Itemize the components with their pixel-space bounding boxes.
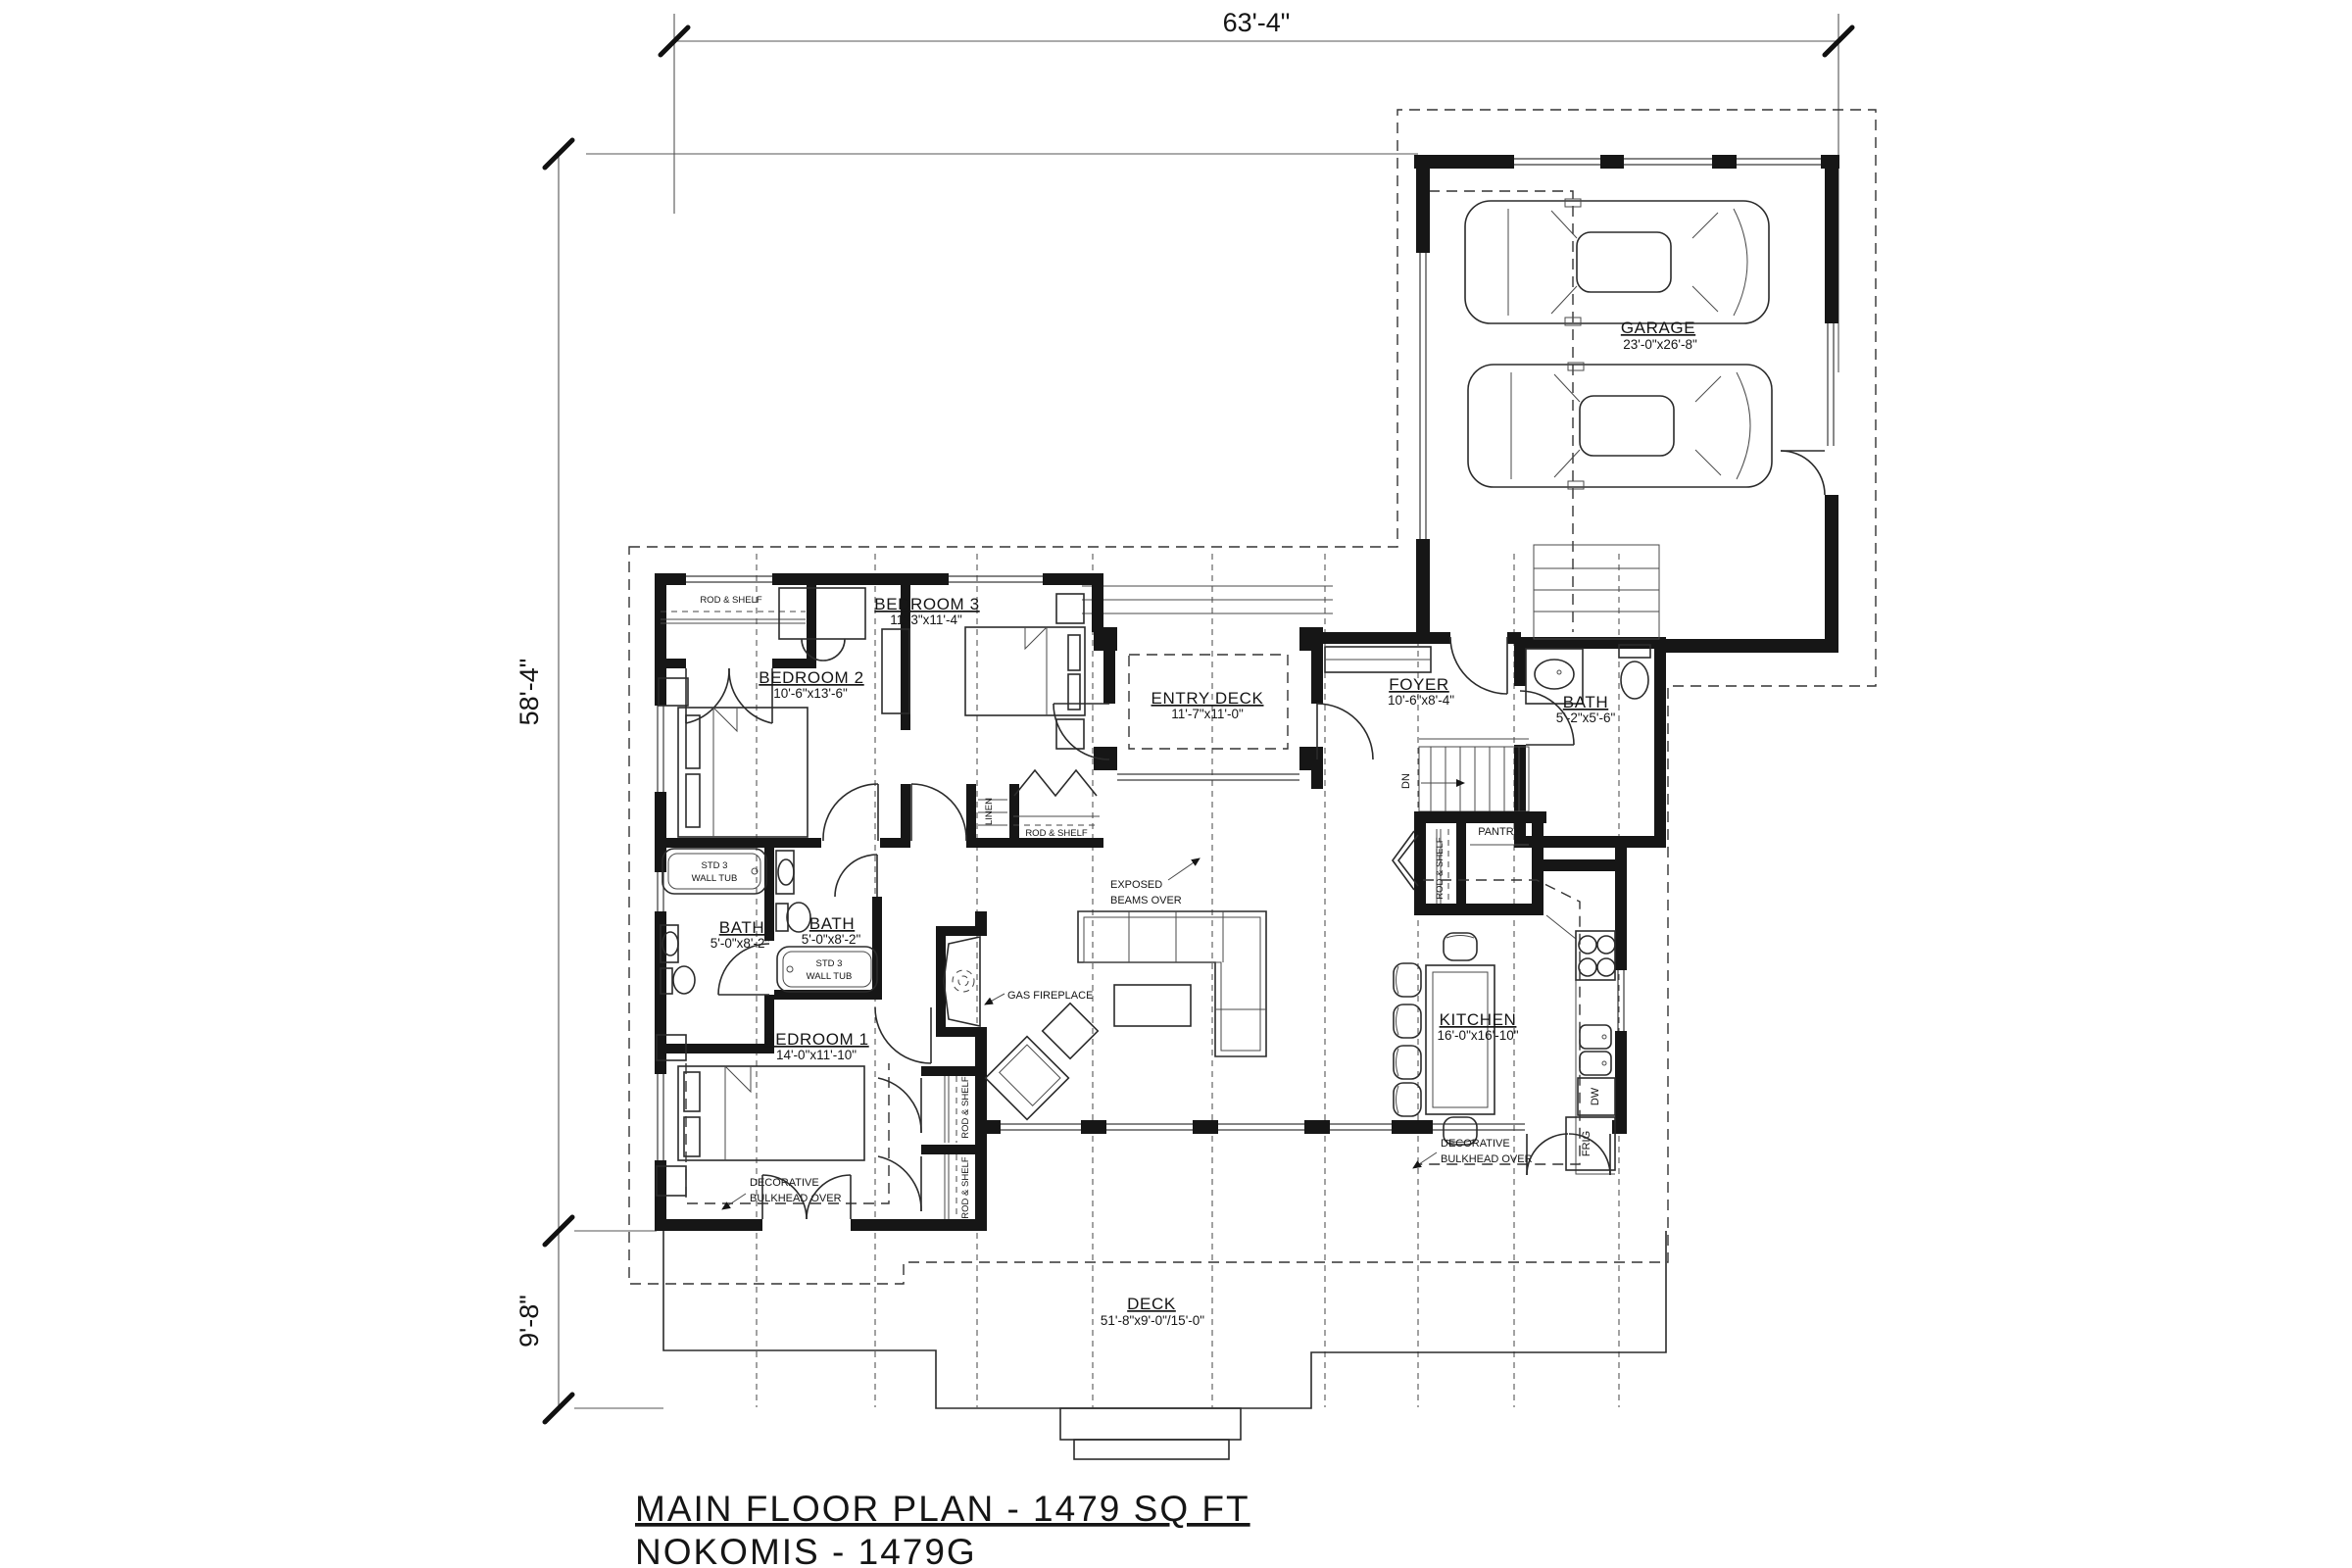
main-bath-size: 5'-0"x8'-2" <box>802 932 861 947</box>
bulkhead-note-right-line1: DECORATIVE <box>1441 1138 1510 1150</box>
deck-size: 51'-8"x9'-0"/15'-0" <box>1101 1313 1204 1328</box>
sectional-sofa <box>1078 911 1266 1056</box>
exposed-beams-note-line1: EXPOSED <box>1110 879 1162 891</box>
hall-bath-size: 5'-2"x5'-6" <box>1556 710 1616 725</box>
coffee-table <box>1114 985 1191 1026</box>
bedroom2-closet-rod-shelf-label: ROD & SHELF <box>700 595 762 606</box>
bedroom1-closet-rod-shelf-bottom: ROD & SHELF <box>960 1156 971 1219</box>
pantry-label: PANTRY <box>1478 826 1521 838</box>
entry-deck-size: 11'-7"x11'-0" <box>1171 707 1244 721</box>
ensuite-bath-size: 5'-0"x8'-2" <box>710 936 770 951</box>
main-bath-tub-line2: WALL TUB <box>807 971 853 982</box>
bedroom3-bed <box>965 627 1085 715</box>
title-block: MAIN FLOOR PLAN - 1479 SQ FT NOKOMIS - 1… <box>635 1489 1250 1568</box>
deck-steps-lower <box>1074 1440 1229 1459</box>
structural-grid-lines <box>757 554 1619 1407</box>
garage-label: GARAGE <box>1621 318 1695 337</box>
fridge-label: FRIG <box>1581 1131 1592 1156</box>
kitchen-size: 16'-0"x16'-10" <box>1437 1028 1518 1043</box>
deck: DECK 51'-8"x9'-0"/15'-0" <box>663 1231 1666 1459</box>
bedroom1-label: BEDROOM 1 <box>763 1030 868 1049</box>
bedroom1-size: 14'-0"x11'-10" <box>776 1048 857 1062</box>
foyer-size: 10'-6"x8'-4" <box>1388 693 1454 708</box>
main-bath-label: BATH <box>809 914 855 933</box>
ensuite-bathroom: STD 3 WALL TUB BATH 5'-0"x8'-2" <box>661 849 769 995</box>
bedroom2-size: 10'-6"x13'-6" <box>773 686 848 701</box>
dimension-left-height: 58'-4" <box>514 659 544 726</box>
sheet-title: MAIN FLOOR PLAN - 1479 SQ FT <box>635 1489 1250 1529</box>
bulkhead-note-right-line2: BULKHEAD OVER <box>1441 1153 1533 1165</box>
dishwasher-label: DW <box>1590 1087 1601 1105</box>
kitchen-sink <box>1580 1025 1611 1075</box>
deck-label: DECK <box>1127 1295 1176 1313</box>
bedroom1-closet-rod-shelf-top: ROD & SHELF <box>960 1076 971 1139</box>
ottoman <box>1043 1004 1099 1059</box>
garage-side-door <box>1781 451 1825 495</box>
foyer-label: FOYER <box>1389 675 1449 694</box>
bedroom2-dresser <box>779 588 865 639</box>
bedroom2: ROD & SHELF BEDROOM 2 10'-6"x13'-6" <box>659 588 878 841</box>
entry-deck-label: ENTRY DECK <box>1151 689 1264 708</box>
ensuite-tub: STD 3 WALL TUB <box>662 849 766 894</box>
main-bath-tub: STD 3 WALL TUB <box>777 947 877 992</box>
main-bath-tub-line1: STD 3 <box>816 958 843 969</box>
dimension-top-width: 63'-4" <box>1223 8 1291 37</box>
coat-closet-rod-shelf-label: ROD & SHELF <box>1435 837 1445 900</box>
exposed-beams-note-line2: BEAMS OVER <box>1110 895 1182 906</box>
bedroom1: BEDROOM 1 14'-0"x11'-10" DECORATIVE BULK… <box>657 1007 971 1219</box>
bulkhead-note-left-line1: DECORATIVE <box>750 1177 819 1189</box>
dimension-deck-depth: 9'-8" <box>514 1295 544 1347</box>
kitchen-label: KITCHEN <box>1440 1010 1517 1029</box>
gas-fireplace <box>936 926 987 1037</box>
ensuite-tub-line1: STD 3 <box>702 860 728 871</box>
foyer: FOYER 10'-6"x8'-4" <box>1325 637 1507 708</box>
bulkhead-note-left-line2: BULKHEAD OVER <box>750 1193 842 1204</box>
garage: GARAGE 23'-0"x26'-8" <box>1414 155 1839 653</box>
ensuite-bath-label: BATH <box>719 918 764 937</box>
floor-plan-sheet: 63'-4" 58'-4" 9'-8" DECK 51'-8"x9'-0"/15… <box>0 0 2352 1568</box>
main-bathroom: BATH 5'-0"x8'-2" STD 3 WALL TUB <box>776 851 877 992</box>
car-bottom <box>1468 363 1772 489</box>
deck-steps <box>1060 1408 1241 1440</box>
hall-bathroom: BATH 5'-2"x5'-6" <box>1520 645 1650 745</box>
bedroom2-label: BEDROOM 2 <box>759 668 863 687</box>
bedroom3-closet-rod-shelf-label: ROD & SHELF <box>1025 828 1088 839</box>
hall-bath-label: BATH <box>1563 693 1608 711</box>
plan-name: NOKOMIS - 1479G <box>635 1532 977 1568</box>
gas-fireplace-label: GAS FIREPLACE <box>1007 990 1093 1002</box>
stairs-dn-label: DN <box>1400 773 1412 789</box>
bedroom3-nightstand-top <box>1056 594 1084 623</box>
bedroom3-label: BEDROOM 3 <box>874 595 979 613</box>
garage-size: 23'-0"x26'-8" <box>1623 337 1697 352</box>
floor-plan-drawing: 63'-4" 58'-4" 9'-8" DECK 51'-8"x9'-0"/15… <box>0 0 2352 1568</box>
bedroom1-bed <box>678 1066 864 1160</box>
linen-label: LINEN <box>984 798 995 825</box>
accent-chair <box>986 1037 1069 1120</box>
bedroom3-size: 11'-3"x11'-4" <box>890 612 962 627</box>
ensuite-tub-line2: WALL TUB <box>692 873 738 884</box>
car-top <box>1465 199 1769 325</box>
bedroom2-bed <box>678 708 808 837</box>
